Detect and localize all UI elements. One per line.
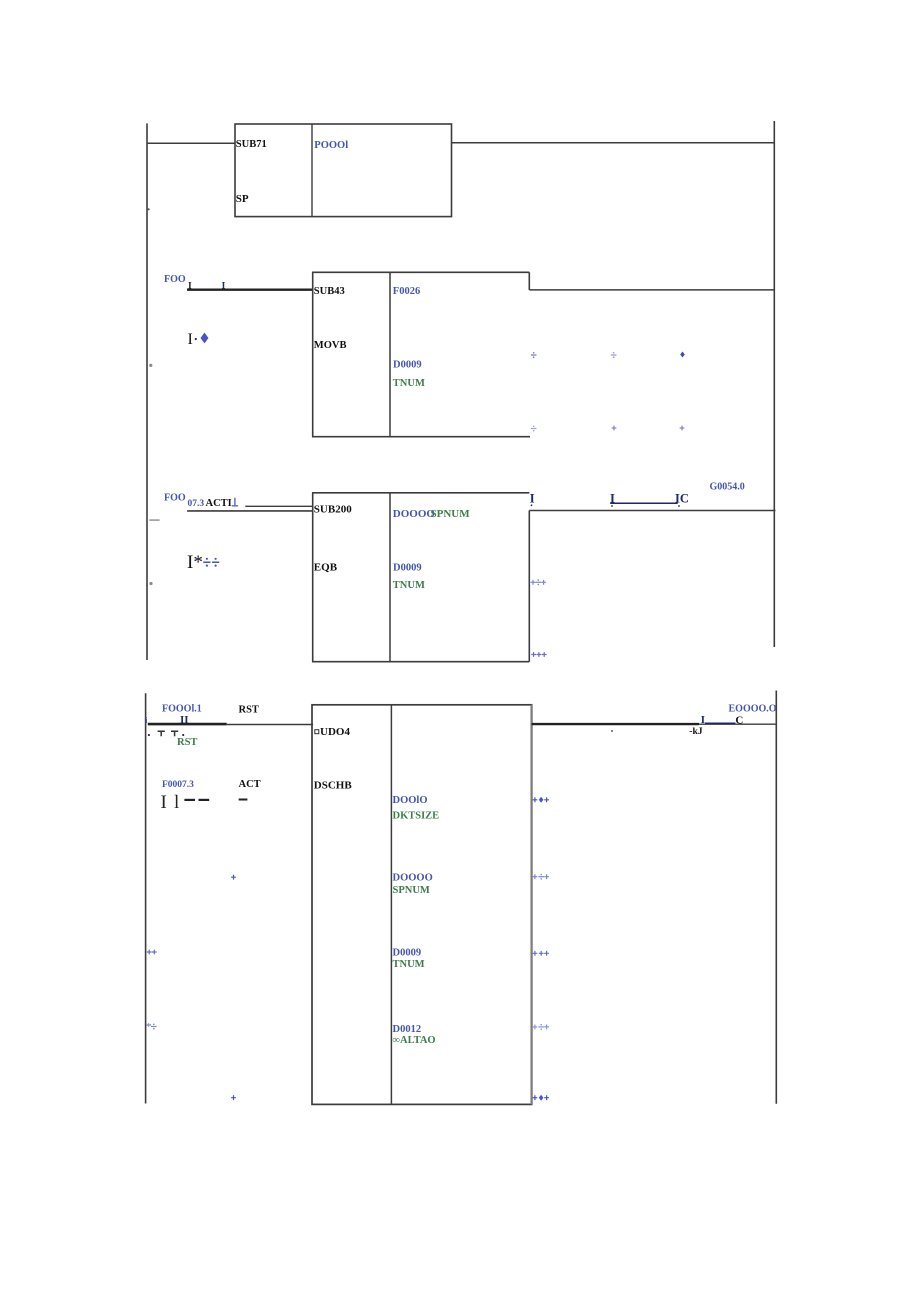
- svg-text:TNUM: TNUM: [393, 959, 425, 970]
- svg-text:ACTI: ACTI: [206, 498, 232, 509]
- svg-text:SUB71: SUB71: [236, 139, 267, 150]
- svg-text:D0009: D0009: [393, 563, 422, 574]
- svg-text:SPNUM: SPNUM: [431, 508, 471, 520]
- svg-text:TNUM: TNUM: [393, 580, 425, 591]
- svg-text:SPNUM: SPNUM: [393, 885, 430, 896]
- svg-text:EQB: EQB: [314, 562, 338, 574]
- svg-text:I: I: [530, 491, 535, 505]
- svg-text:DSCHB: DSCHB: [314, 780, 353, 792]
- svg-text:I: I: [701, 714, 705, 726]
- svg-text:EOOOO.O: EOOOO.O: [729, 703, 777, 714]
- svg-text:FOOOl.1: FOOOl.1: [162, 704, 202, 715]
- svg-text:SP: SP: [236, 193, 249, 205]
- svg-text:F0007.3: F0007.3: [162, 780, 194, 790]
- svg-text:G0054.0: G0054.0: [710, 481, 745, 492]
- svg-text:RST: RST: [239, 705, 259, 716]
- svg-text:I: I: [161, 792, 167, 813]
- svg-text:RST: RST: [177, 737, 197, 748]
- svg-text:∞ALTAO: ∞ALTAO: [393, 1035, 436, 1046]
- svg-text:I*: I*: [187, 552, 203, 573]
- svg-text:07.3: 07.3: [188, 499, 205, 509]
- svg-text:TNUM: TNUM: [393, 378, 425, 389]
- svg-text:F0026: F0026: [393, 286, 420, 297]
- svg-text:*: *: [146, 1021, 152, 1033]
- svg-text:l: l: [174, 792, 179, 813]
- svg-text:MOVB: MOVB: [314, 340, 347, 351]
- svg-text:I: I: [188, 331, 193, 348]
- svg-text:C: C: [735, 714, 743, 726]
- svg-text:FOO: FOO: [164, 493, 186, 504]
- svg-text:-kJ: -kJ: [689, 727, 702, 737]
- svg-text:DOOOO: DOOOO: [393, 508, 436, 520]
- svg-text:SUB43: SUB43: [314, 286, 345, 297]
- svg-text:POOOl: POOOl: [314, 140, 348, 151]
- svg-text:DOOlO: DOOlO: [393, 795, 428, 806]
- svg-text:DOOOO: DOOOO: [393, 873, 433, 884]
- svg-text:UDO4: UDO4: [320, 726, 350, 738]
- svg-text:D0012: D0012: [393, 1024, 422, 1035]
- svg-text:DKTSIZE: DKTSIZE: [393, 811, 440, 822]
- svg-text:D0009: D0009: [393, 360, 422, 371]
- svg-text:ACT: ACT: [239, 779, 261, 790]
- svg-text:SUB200: SUB200: [314, 503, 352, 515]
- svg-text:D0009: D0009: [393, 948, 422, 959]
- svg-text:FOO: FOO: [164, 274, 186, 285]
